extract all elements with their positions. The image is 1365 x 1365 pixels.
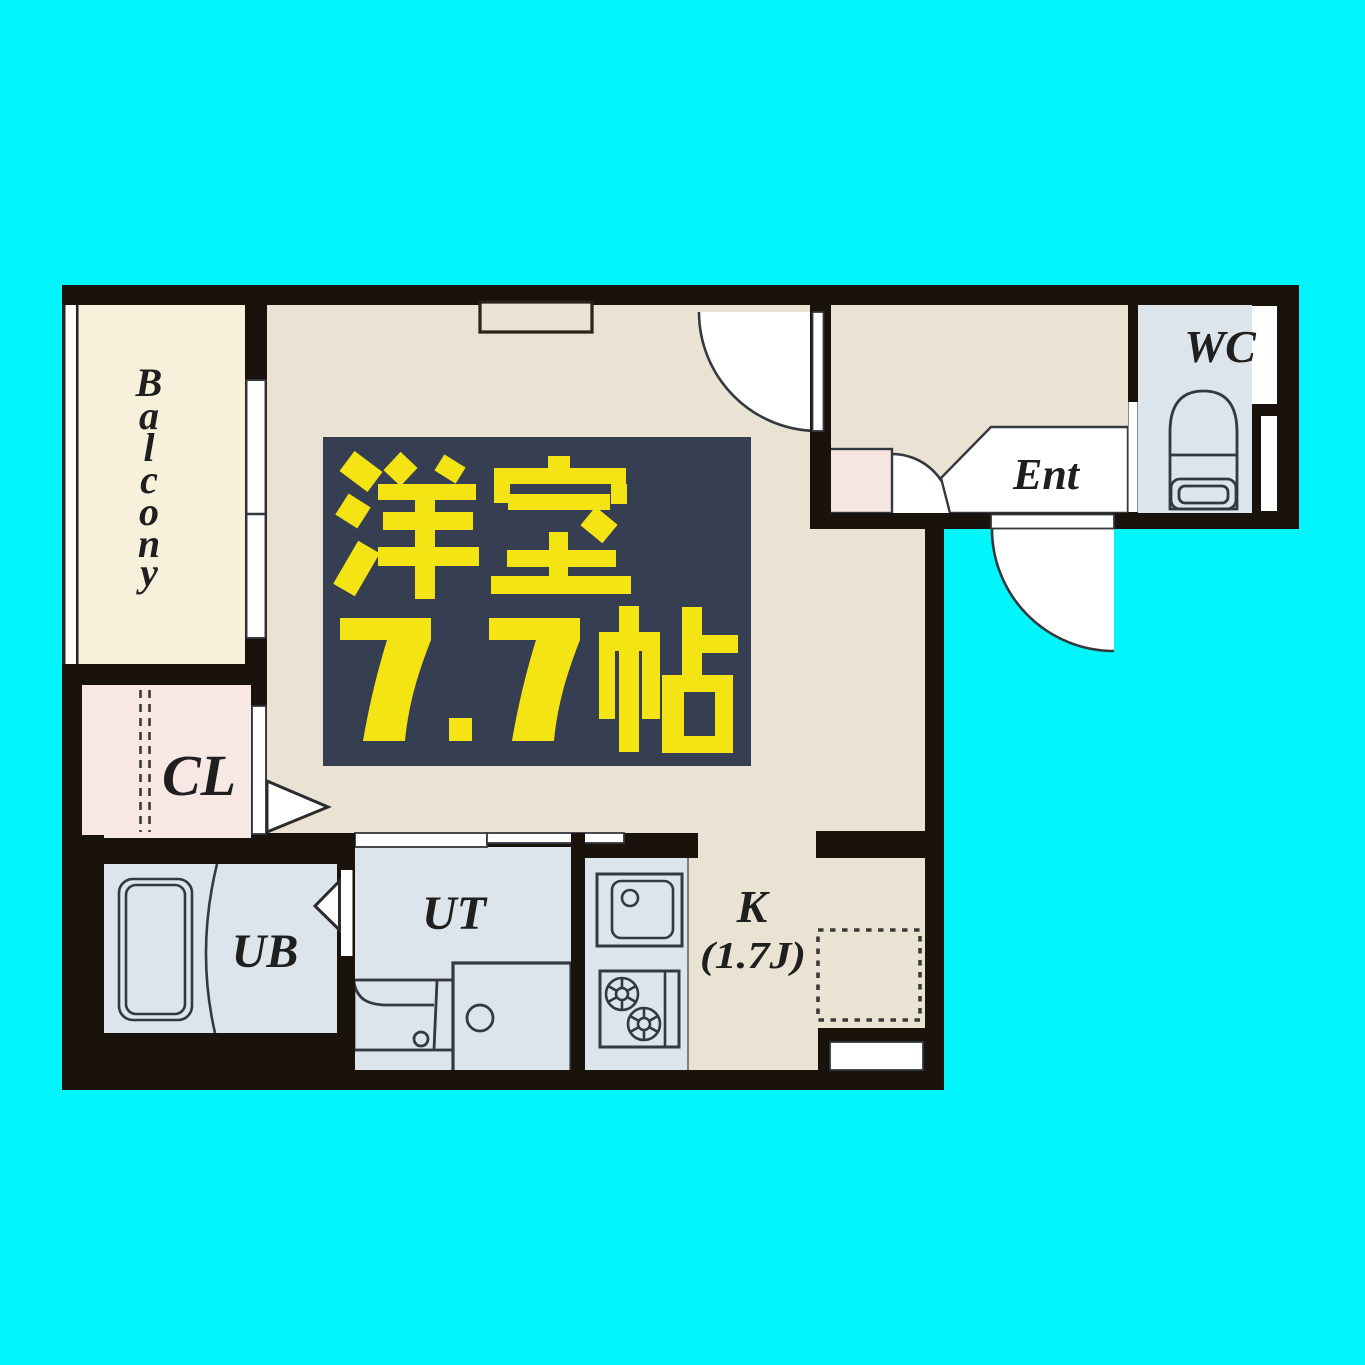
- svg-text:CL: CL: [162, 743, 236, 808]
- svg-text:(1.7J): (1.7J): [700, 935, 806, 977]
- svg-text:Ent: Ent: [1012, 450, 1081, 499]
- svg-text:K: K: [736, 881, 771, 932]
- svg-text:UT: UT: [422, 887, 488, 940]
- svg-text:WC: WC: [1184, 321, 1257, 372]
- svg-text:UB: UB: [232, 925, 299, 978]
- svg-text:y: y: [136, 550, 158, 595]
